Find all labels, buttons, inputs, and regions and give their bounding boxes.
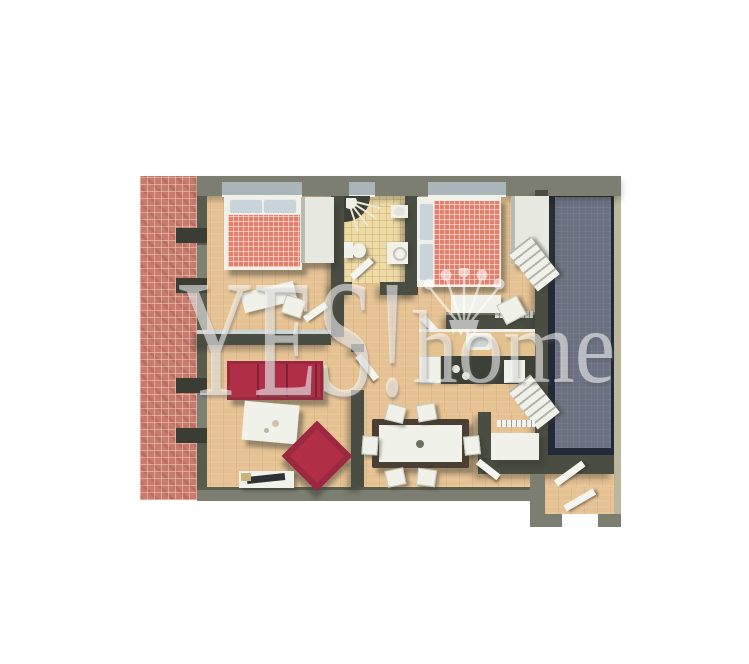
dining-chair bbox=[463, 435, 481, 456]
radiator bbox=[497, 420, 535, 427]
window-bedroom-1 bbox=[222, 182, 302, 197]
table-decor-icon bbox=[264, 428, 269, 433]
wall-vestibule-bottom-left bbox=[530, 514, 562, 527]
wall-vestibule-bottom-right bbox=[598, 514, 621, 527]
bed-1-duvet bbox=[227, 214, 301, 268]
table-plant-icon bbox=[416, 440, 424, 448]
tv-stand-decor bbox=[241, 473, 251, 481]
outer-right-edge bbox=[614, 176, 621, 527]
wall-living-dining-stub bbox=[351, 344, 364, 352]
toilet-bowl bbox=[352, 243, 366, 258]
stove-burner-icon bbox=[462, 372, 470, 380]
wall-bath-bottom-right bbox=[380, 282, 418, 295]
window-bathroom bbox=[349, 182, 375, 197]
terrace bbox=[548, 190, 614, 455]
crown-icon bbox=[418, 268, 510, 354]
dining-chair bbox=[361, 435, 378, 455]
window-sill-left-bottom bbox=[197, 393, 207, 428]
coffee-table bbox=[241, 401, 299, 445]
wall-pier bbox=[176, 378, 207, 393]
table-decor-icon bbox=[272, 420, 279, 427]
outer-wall-bottom bbox=[197, 487, 545, 501]
hall-cabinet bbox=[491, 433, 539, 460]
wall-pier bbox=[176, 428, 207, 443]
stove-burner-icon bbox=[452, 365, 460, 373]
pillow bbox=[229, 199, 263, 214]
wall-bed1-living bbox=[197, 330, 331, 345]
window-bedroom-2 bbox=[428, 182, 506, 197]
pillow bbox=[419, 203, 434, 241]
window-sill-left-top bbox=[197, 245, 207, 278]
wardrobe-bedroom-1 bbox=[301, 197, 334, 263]
shower-icon bbox=[346, 198, 382, 234]
wall-pier bbox=[176, 228, 207, 243]
pillow bbox=[263, 199, 297, 214]
wall-pier bbox=[176, 278, 207, 293]
floorplan-render: YES! home bbox=[0, 0, 749, 664]
dining-chair bbox=[416, 468, 437, 487]
washer-door-icon bbox=[393, 247, 407, 261]
sink-basin bbox=[394, 207, 405, 216]
dining-chair bbox=[416, 402, 438, 422]
brick-patio bbox=[140, 176, 197, 500]
fridge bbox=[419, 356, 441, 384]
sofa bbox=[227, 361, 323, 400]
wall-corridor bbox=[331, 292, 344, 337]
